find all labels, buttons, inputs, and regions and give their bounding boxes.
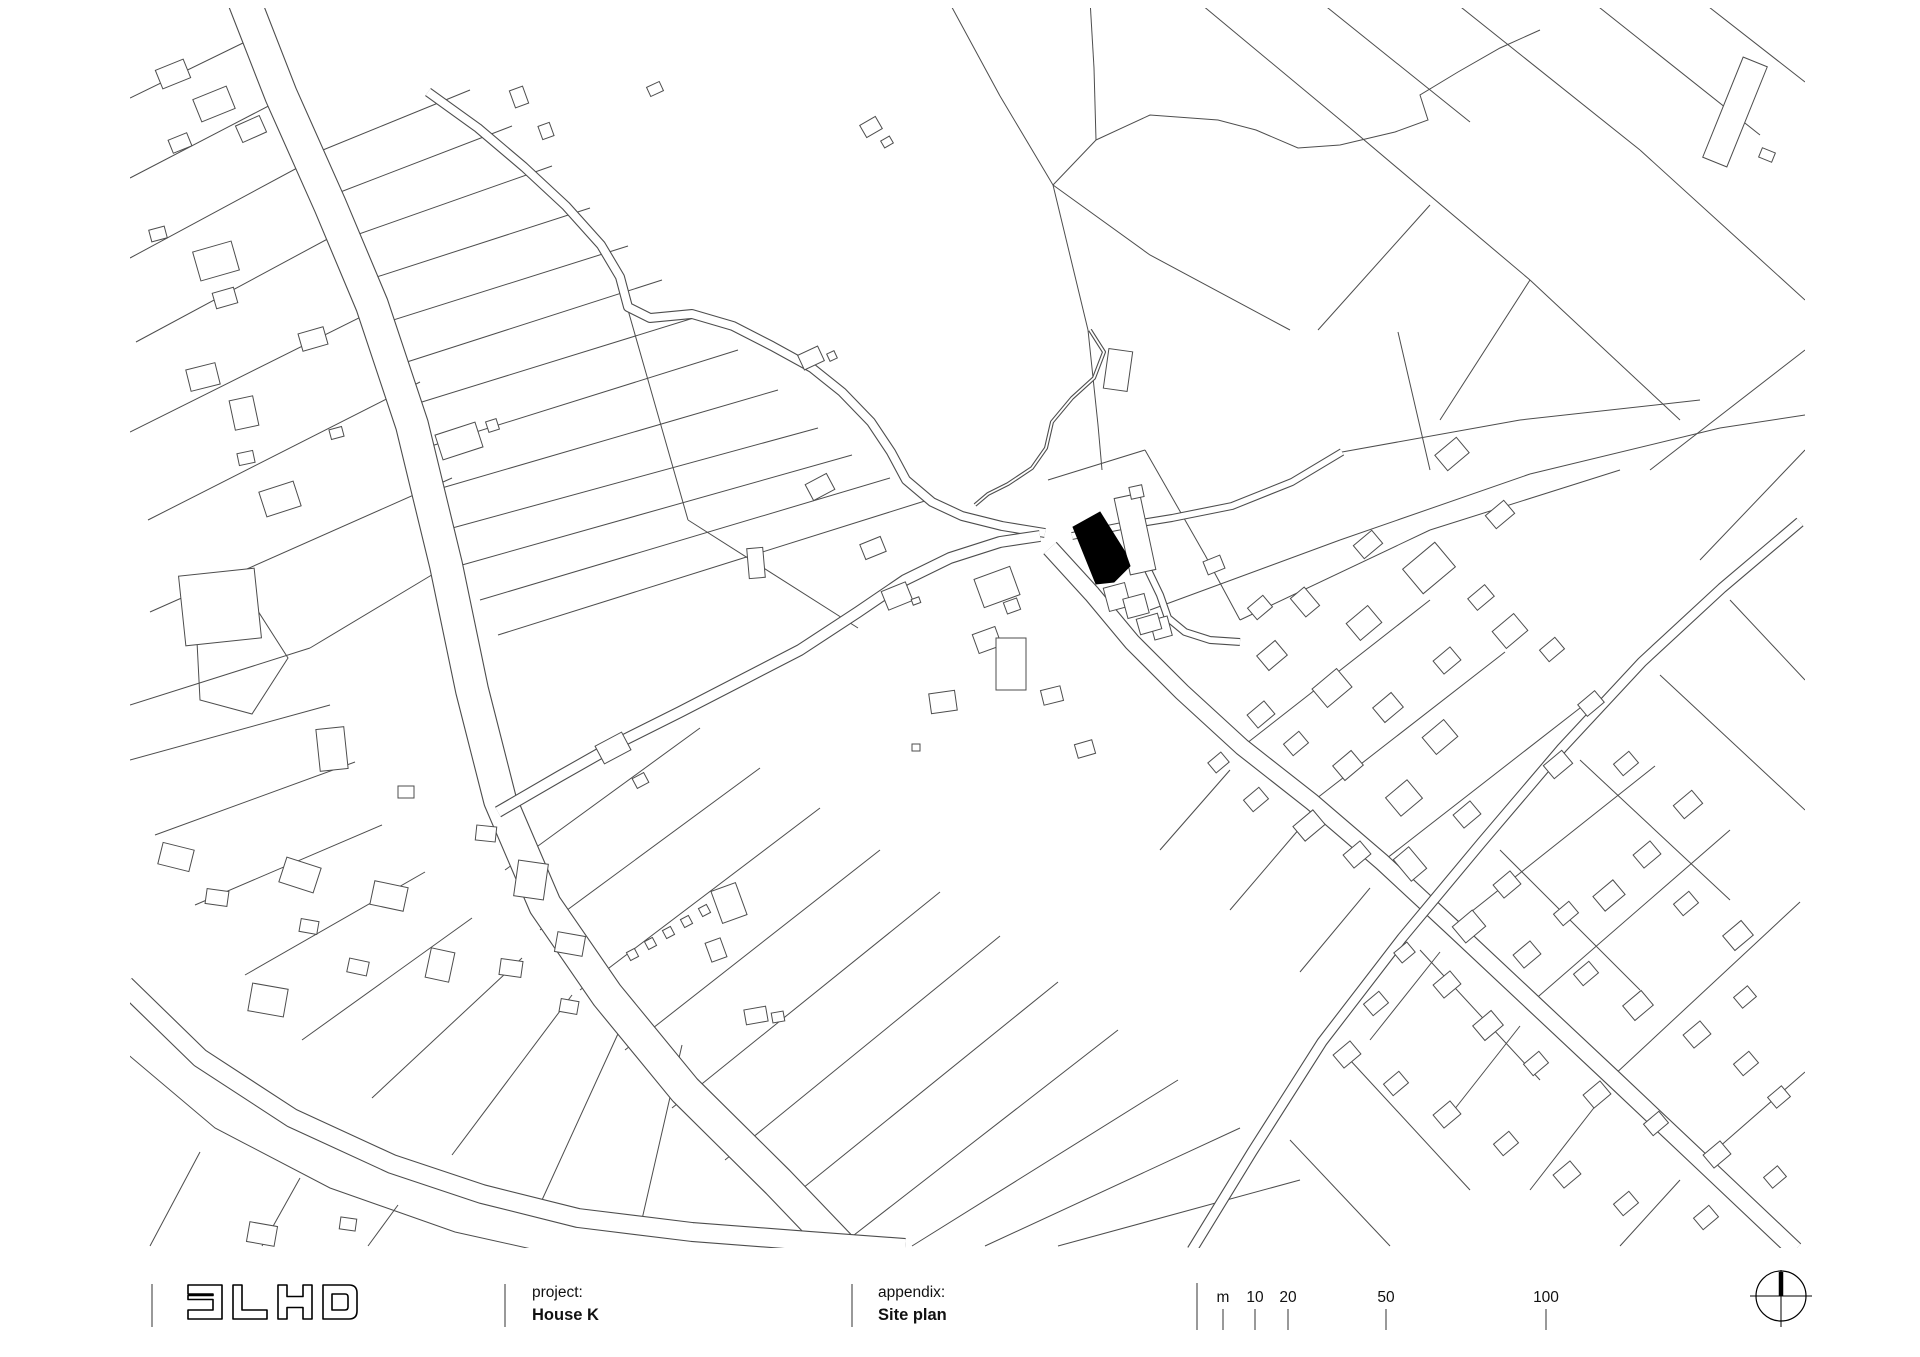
building-footprint [680, 915, 692, 927]
building-footprint [912, 744, 920, 751]
parcel-boundary [1230, 828, 1300, 910]
parcel-boundary [1430, 470, 1620, 530]
parcel-boundary [1342, 420, 1520, 452]
road [498, 536, 1040, 812]
building-footprint [1312, 669, 1352, 708]
parcel-boundary [1530, 428, 1720, 474]
building-footprint [1554, 901, 1579, 925]
parcel-boundary [1420, 950, 1540, 1080]
building-footprint [193, 86, 235, 122]
parcel-boundary [1398, 332, 1430, 470]
building-footprint [237, 450, 255, 465]
building-footprint [1386, 780, 1423, 816]
building-footprint [229, 396, 259, 430]
building-footprint [298, 327, 328, 351]
building-footprint [425, 948, 455, 982]
parcel-boundary [1300, 888, 1370, 972]
parcel-boundary [1650, 350, 1805, 470]
building-footprint [514, 860, 549, 900]
scalebar-label: 100 [1533, 1289, 1559, 1306]
building-footprint [435, 422, 483, 460]
building-footprint [186, 363, 220, 392]
parcel-boundary [1196, 0, 1350, 128]
project-value: House K [532, 1306, 599, 1324]
logo-letter [278, 1285, 312, 1319]
building-footprint [1373, 693, 1404, 723]
drawing-sheet: project: House K appendix: Site plan m10… [0, 0, 1920, 1357]
building-footprint [1346, 606, 1382, 641]
parcel-boundary [1350, 128, 1530, 280]
parcel-boundary [1350, 1060, 1470, 1190]
building-footprint [626, 948, 638, 960]
parcel-boundary [1640, 150, 1805, 300]
parcel-boundary [1318, 205, 1430, 330]
parcel-boundary [310, 570, 440, 648]
road [1072, 452, 1342, 536]
building-footprint [1403, 542, 1456, 594]
building-footprint [881, 136, 894, 148]
building-footprint [929, 690, 958, 713]
building-footprint [698, 904, 710, 916]
building-footprint [1768, 1086, 1791, 1108]
parcel-boundary [368, 246, 628, 328]
building-footprint [1574, 961, 1599, 985]
parcel-boundary [480, 478, 890, 600]
building-footprint [771, 1011, 785, 1023]
building-footprint [1513, 941, 1541, 968]
parcel-boundary [672, 892, 940, 1108]
parcel-boundary [580, 808, 820, 990]
parcel-boundary [948, 0, 1000, 96]
parcel-boundary [125, 1052, 545, 1252]
building-footprint [499, 959, 523, 978]
building-footprint [805, 473, 835, 500]
building-footprint [339, 1217, 357, 1231]
parcel-boundary [396, 316, 700, 410]
building-footprint [744, 1006, 768, 1025]
scale-bar: m102050100 [1197, 1283, 1559, 1330]
building-footprint [1244, 787, 1269, 811]
company-logo [188, 1285, 357, 1319]
building-footprint [1553, 1161, 1581, 1188]
parcel-boundary [1053, 140, 1096, 185]
building-footprint [1040, 686, 1063, 705]
appendix-value: Site plan [878, 1306, 947, 1324]
building-footprint [248, 983, 288, 1017]
building-footprint [1633, 841, 1661, 868]
site-plan-map: project: House K appendix: Site plan m10… [0, 0, 1920, 1357]
parcel-boundary [1318, 0, 1470, 122]
building-footprint [1734, 1051, 1759, 1075]
building-footprint [1433, 971, 1461, 998]
parcel-boundary [342, 166, 552, 240]
parcel-boundary [688, 520, 858, 628]
building-footprint [1623, 991, 1654, 1021]
building-footprint [1248, 595, 1273, 619]
project-label: project: [532, 1284, 583, 1301]
building-footprint [205, 889, 229, 907]
building-footprint [1703, 57, 1768, 167]
parcel-boundary [1090, 0, 1094, 68]
parcel-boundary [318, 90, 470, 152]
building-footprint [1583, 1081, 1611, 1108]
parcel-boundary [150, 1152, 200, 1246]
building-footprint [860, 536, 886, 559]
building-footprint [860, 116, 883, 137]
building-footprint [554, 932, 585, 957]
building-footprint [1074, 740, 1095, 758]
building-footprint [1433, 1101, 1461, 1128]
building-footprint [347, 958, 369, 976]
building-footprint [475, 825, 496, 842]
parcel-boundary [355, 208, 590, 284]
building-footprint [705, 938, 727, 962]
logo-letter [233, 1285, 267, 1319]
building-footprint [827, 351, 838, 362]
building-footprint [1683, 1021, 1711, 1048]
building-footprint [279, 857, 321, 893]
building-footprint [158, 842, 194, 871]
road-casing [428, 92, 1045, 533]
parcel-boundary [1058, 1180, 1300, 1246]
parcel-boundary [136, 228, 348, 342]
road-casing [1072, 452, 1342, 536]
building-footprint [329, 426, 344, 439]
parcel-boundary [1094, 68, 1096, 140]
parcel-boundary [1145, 450, 1205, 555]
parcel-boundary [1520, 400, 1700, 420]
parcel-boundary [130, 705, 330, 760]
parcel-boundary [542, 1025, 622, 1200]
building-footprint [299, 919, 319, 935]
building-footprint [1433, 647, 1461, 674]
building-footprint [1593, 880, 1625, 911]
building-footprint [212, 287, 238, 308]
parcel-boundary [130, 160, 312, 258]
building-footprint [1764, 1166, 1787, 1188]
building-footprint [1723, 921, 1754, 951]
building-footprint [1435, 437, 1469, 470]
parcel-boundary [1580, 760, 1730, 900]
parcel-boundary [1053, 185, 1290, 330]
parcel-boundary [1620, 1180, 1680, 1246]
building-footprint [711, 883, 747, 924]
building-footprint [1290, 587, 1319, 617]
building-footprint [1284, 731, 1309, 755]
scalebar-label: 20 [1279, 1289, 1297, 1306]
building-footprint [662, 926, 674, 938]
road-casing [975, 330, 1104, 505]
parcel-boundary [628, 310, 688, 520]
building-footprint [193, 241, 240, 281]
building-footprint [1333, 751, 1364, 781]
logo-letter [323, 1285, 357, 1319]
building-footprint [1257, 641, 1288, 671]
north-arrow-icon [1750, 1270, 1812, 1327]
building-footprint [1614, 751, 1639, 775]
parcel-boundary [130, 648, 310, 705]
building-footprint [179, 568, 262, 646]
scalebar-label: m [1217, 1289, 1230, 1306]
parcel-boundary [462, 455, 852, 565]
parcel-boundary [1440, 280, 1530, 420]
building-footprint [1468, 585, 1494, 611]
building-footprint [647, 82, 664, 97]
appendix-label: appendix: [878, 1284, 945, 1301]
building-footprint [1524, 1051, 1549, 1075]
parcel-boundary [782, 982, 1058, 1205]
titleblock-separators [152, 1284, 852, 1327]
parcel-boundary [155, 762, 355, 835]
building-footprint [398, 786, 414, 798]
building-footprint [1422, 720, 1458, 755]
building-footprint [155, 59, 190, 89]
scalebar-label: 50 [1377, 1289, 1395, 1306]
building-footprint [1129, 485, 1144, 499]
scalebar-label: 10 [1246, 1289, 1264, 1306]
parcel-boundary [1160, 770, 1230, 850]
building-footprint [168, 133, 192, 153]
building-footprint [1364, 991, 1389, 1015]
parcel-boundary [452, 995, 572, 1155]
building-footprint [1384, 1071, 1409, 1095]
road [975, 330, 1104, 505]
building-footprint [559, 999, 579, 1015]
logo-letter [188, 1285, 222, 1319]
building-footprint [1492, 614, 1528, 649]
building-footprint [1694, 1205, 1719, 1229]
parcel-boundary [1530, 280, 1680, 420]
building-footprint [1103, 349, 1132, 392]
building-footprint [1494, 1131, 1519, 1155]
building-footprint [1674, 891, 1699, 915]
building-footprint [1614, 1191, 1639, 1215]
parcel-boundary [1000, 96, 1053, 185]
parcel-boundary [1290, 1140, 1390, 1246]
building-footprint [1734, 986, 1757, 1008]
title-block: project: House K appendix: Site plan m10… [152, 1270, 1812, 1330]
building-footprint [259, 481, 301, 517]
parcel-boundary [912, 1080, 1178, 1246]
building-footprint [911, 597, 921, 605]
building-footprint [1759, 148, 1776, 163]
parcel-boundary [1730, 600, 1805, 680]
parcel-boundary [1452, 0, 1640, 150]
building-footprint [1003, 598, 1020, 614]
cadastral-linework [125, 0, 1805, 1252]
building-footprint [1333, 1041, 1361, 1068]
parcel-boundary [1048, 450, 1145, 480]
building-footprint [316, 727, 348, 772]
building-footprint [1453, 801, 1481, 828]
building-footprint [1540, 637, 1565, 661]
building-footprint [509, 86, 528, 108]
building-footprint [1543, 750, 1572, 778]
building-footprint [246, 1222, 277, 1247]
building-footprint [538, 122, 554, 139]
building-footprint [1208, 752, 1229, 773]
parcel-boundary [368, 1205, 398, 1246]
parcel-boundary [725, 936, 1000, 1160]
building-footprint [486, 419, 500, 433]
building-footprint [1493, 871, 1521, 898]
building-footprint [996, 638, 1026, 690]
parcel-boundary [130, 305, 385, 432]
parcel-boundary [845, 1030, 1118, 1242]
building-footprint [235, 115, 266, 142]
parcel-boundary [1096, 30, 1540, 148]
parcel-boundary [1660, 675, 1805, 810]
parcel-boundary [445, 428, 818, 530]
parcel-boundary [1700, 450, 1805, 560]
parcel-boundary [1720, 415, 1805, 428]
building-footprint [747, 547, 766, 578]
building-footprint [1673, 790, 1702, 818]
